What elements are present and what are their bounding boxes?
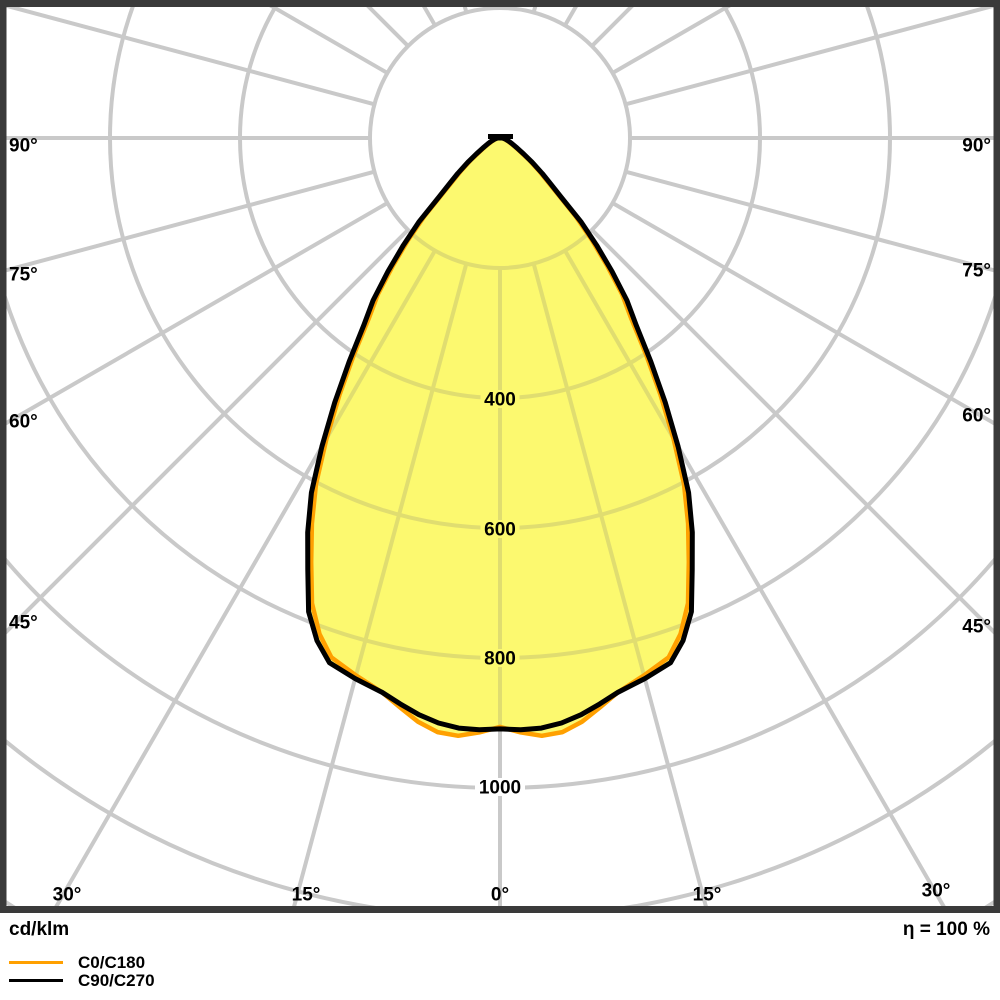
angle-label: 15° xyxy=(292,885,321,906)
legend-label-c0: C0/C180 xyxy=(78,954,145,971)
angle-label: 90° xyxy=(962,136,991,157)
angle-label: 15° xyxy=(693,885,722,906)
grid-radial-line xyxy=(0,0,387,73)
grid-radial-line xyxy=(0,0,374,104)
grid-radial-line xyxy=(0,172,374,384)
radial-tick-label: 800 xyxy=(484,649,516,670)
angle-label: 0° xyxy=(491,885,509,906)
grid-radial-line xyxy=(626,172,1000,384)
legend-row-c90: C90/C270 xyxy=(9,971,155,989)
legend-label-c90: C90/C270 xyxy=(78,972,155,989)
radial-tick-label: 600 xyxy=(484,520,516,541)
angle-label: 75° xyxy=(9,265,38,286)
radial-tick-label: 1000 xyxy=(479,778,521,799)
center-tick xyxy=(488,134,513,139)
angle-label: 75° xyxy=(962,261,991,282)
photometric-diagram: 400600800100090°75°60°45°30°15°0°15°30°4… xyxy=(0,0,1000,1000)
angle-label: 90° xyxy=(9,136,38,157)
efficiency-label: η = 100 % xyxy=(903,920,990,939)
grid-radial-line xyxy=(613,0,1000,73)
legend: C0/C180 C90/C270 xyxy=(9,953,155,989)
unit-label: cd/klm xyxy=(9,920,69,939)
angle-label: 60° xyxy=(962,406,991,427)
angle-label: 30° xyxy=(53,885,82,906)
angle-label: 30° xyxy=(922,881,951,902)
angle-label: 45° xyxy=(9,613,38,634)
grid-radial-line xyxy=(626,0,1000,104)
grid-radial-line xyxy=(613,0,1000,73)
chart-area xyxy=(0,0,1000,1000)
grid-radial-line xyxy=(0,172,374,384)
angle-label: 60° xyxy=(9,412,38,433)
radial-tick-label: 400 xyxy=(484,390,516,411)
c0-c180-line-swatch xyxy=(9,961,63,964)
angle-label: 45° xyxy=(962,617,991,638)
legend-row-c0: C0/C180 xyxy=(9,953,155,971)
polar-intensity-chart: 400600800100090°75°60°45°30°15°0°15°30°4… xyxy=(0,0,1000,1000)
grid-radial-line xyxy=(626,172,1000,384)
c90-c270-line-swatch xyxy=(9,979,63,982)
grid-radial-line xyxy=(0,0,387,73)
